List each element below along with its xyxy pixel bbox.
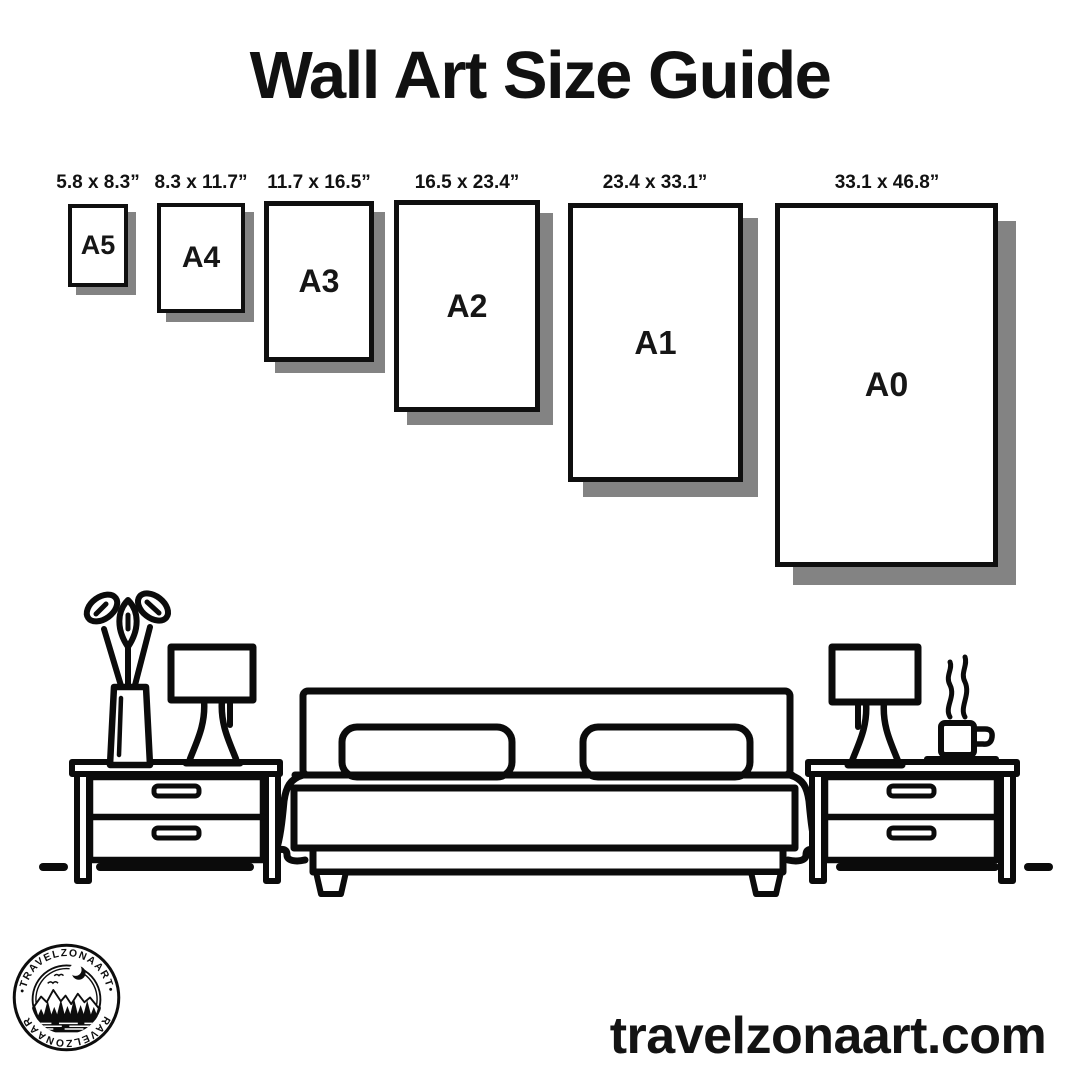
bedroom-illustration — [0, 585, 1080, 905]
frame-label: A1 — [634, 324, 676, 362]
drawer-handle — [154, 786, 199, 796]
brand-logo: •TRAVELZONAART• •TRAVELZONAART• — [10, 941, 123, 1054]
frame-caption-a5: 5.8 x 8.3” — [56, 172, 139, 194]
page-title: Wall Art Size Guide — [0, 41, 1080, 111]
pillow-icon — [583, 727, 750, 777]
flower-vase-icon — [82, 588, 173, 765]
bed-leg — [316, 872, 346, 894]
steam-icon — [948, 662, 951, 717]
frame-label: A5 — [81, 230, 116, 261]
pillow-icon — [342, 727, 512, 777]
drawer-handle — [154, 828, 199, 838]
table-lamp-right-icon — [832, 647, 918, 765]
frame-label: A0 — [865, 366, 908, 405]
size-frame-a0: A0 — [775, 203, 998, 567]
frame-caption-a3: 11.7 x 16.5” — [267, 172, 371, 194]
drawer-handle — [889, 828, 934, 838]
coffee-cup-icon — [927, 657, 996, 759]
steam-icon — [963, 657, 966, 717]
size-frame-a1: A1 — [568, 203, 743, 482]
website-text: travelzonaart.com — [600, 1006, 1056, 1066]
table-lamp-left-icon — [171, 647, 253, 763]
bed-leg — [751, 872, 781, 894]
frame-caption-a1: 23.4 x 33.1” — [603, 172, 708, 194]
drawer-handle — [889, 786, 934, 796]
frame-label: A3 — [299, 263, 340, 300]
size-frame-a3: A3 — [264, 201, 374, 362]
size-frame-a4: A4 — [157, 203, 245, 313]
bed-icon — [276, 691, 817, 894]
frame-label: A4 — [182, 241, 220, 275]
frame-label: A2 — [447, 288, 488, 325]
wall-art-size-guide-poster: Wall Art Size Guide 5.8 x 8.3” 8.3 x 11.… — [0, 0, 1080, 1080]
size-frame-a2: A2 — [394, 200, 540, 412]
size-frame-a5: A5 — [68, 204, 128, 287]
frame-caption-a2: 16.5 x 23.4” — [415, 172, 520, 194]
frame-caption-a4: 8.3 x 11.7” — [155, 172, 248, 194]
frame-caption-a0: 33.1 x 46.8” — [835, 172, 940, 194]
